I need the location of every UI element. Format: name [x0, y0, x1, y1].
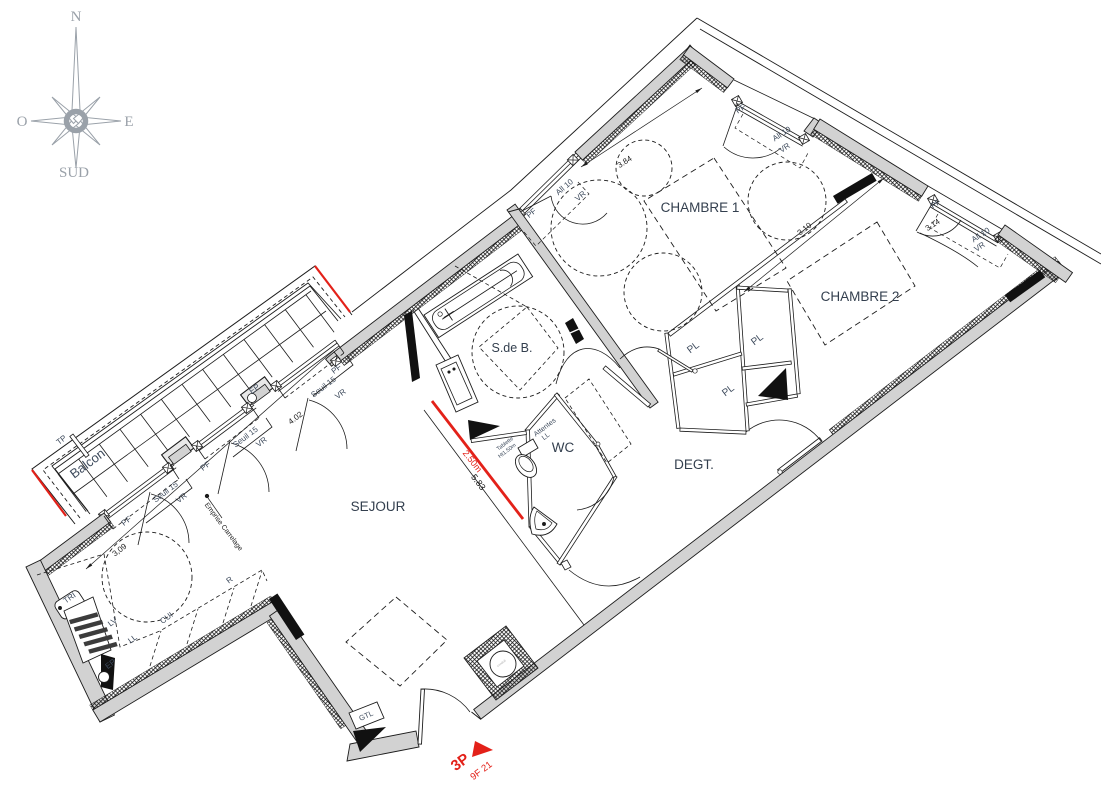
svg-text:DEGT.: DEGT.	[674, 457, 714, 472]
svg-text:SUD: SUD	[59, 165, 89, 181]
svg-text:WC: WC	[552, 440, 575, 455]
svg-text:SEJOUR: SEJOUR	[351, 499, 406, 514]
svg-text:E: E	[124, 114, 133, 130]
svg-text:CHAMBRE 1: CHAMBRE 1	[661, 200, 740, 215]
svg-text:O: O	[17, 114, 28, 130]
svg-text:CHAMBRE 2: CHAMBRE 2	[821, 289, 900, 304]
svg-text:N: N	[71, 9, 82, 25]
svg-text:S.de B.: S.de B.	[492, 341, 533, 355]
